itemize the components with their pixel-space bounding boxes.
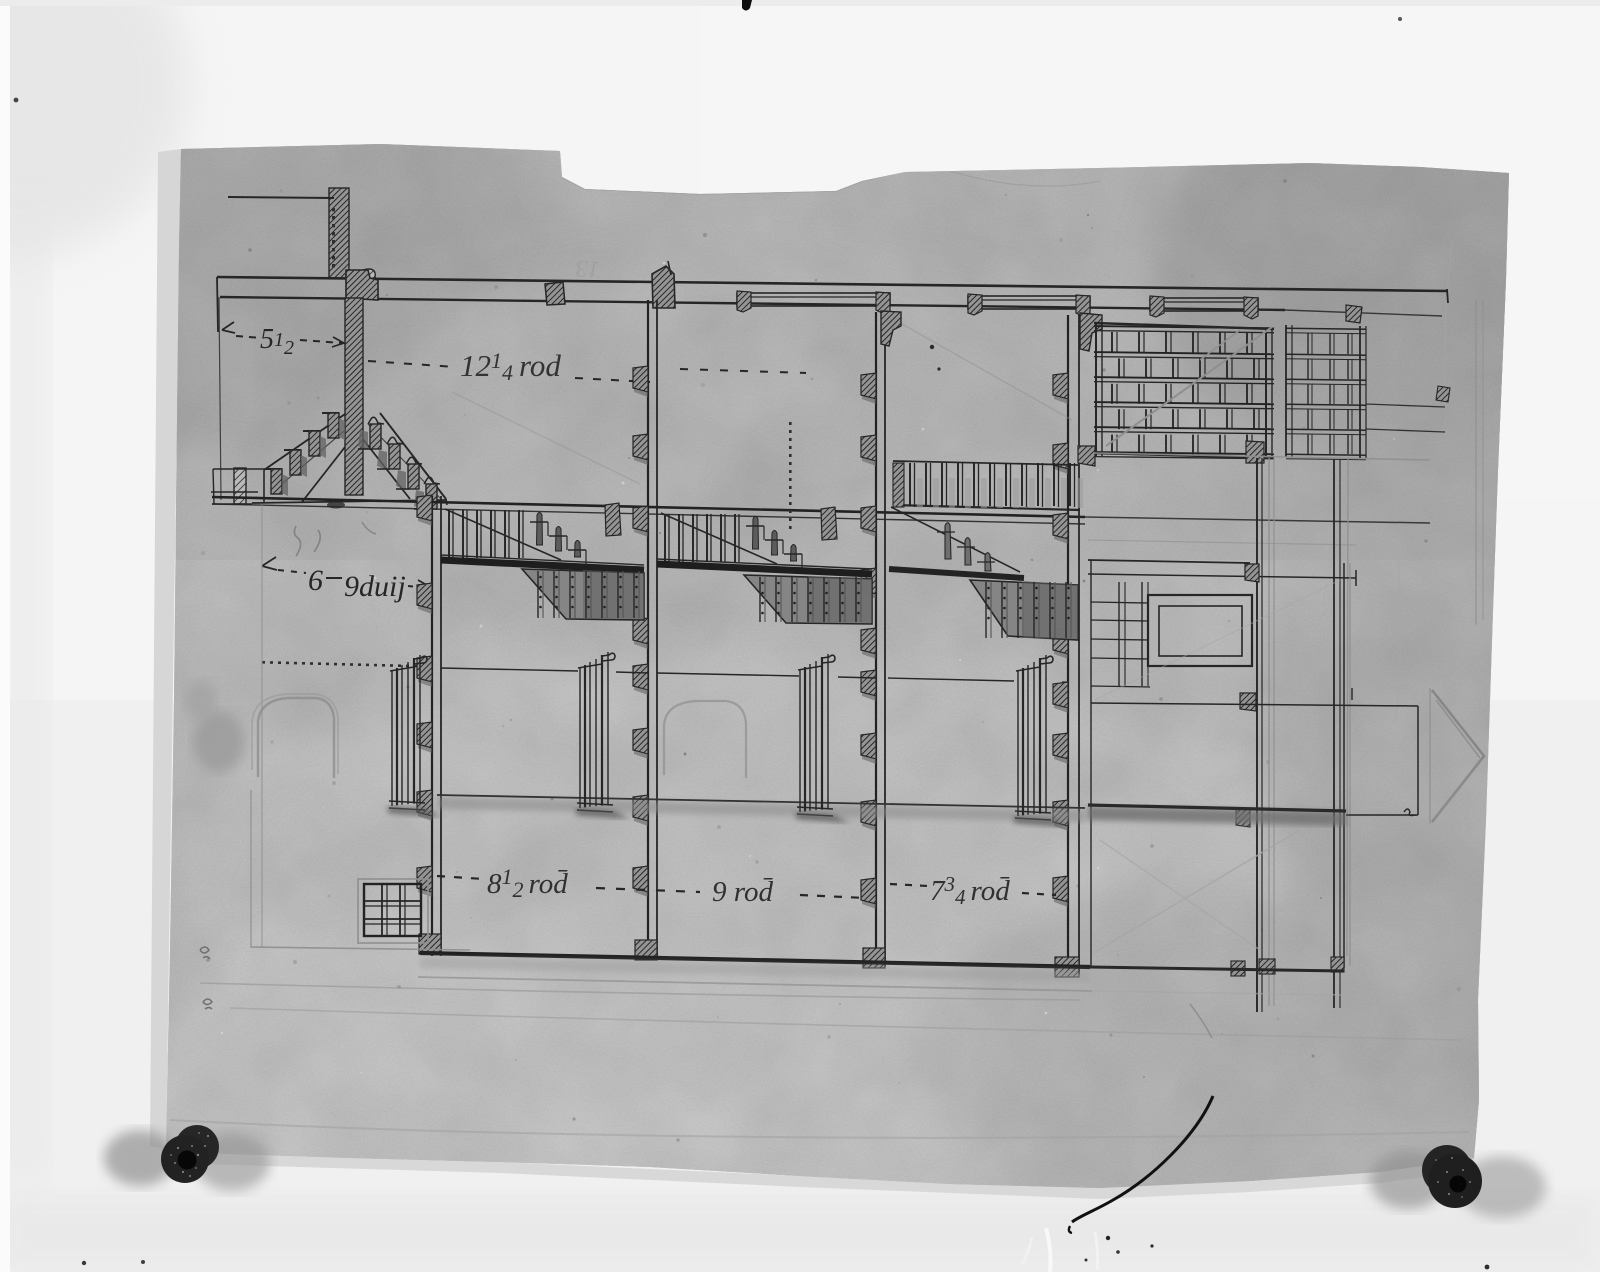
svg-text:6: 6: [308, 564, 323, 597]
svg-text:734rod̄: 734rod̄: [930, 872, 1010, 909]
svg-text:9duij: 9duij: [344, 570, 406, 603]
svg-text:812rod̄: 812rod̄: [487, 864, 568, 902]
svg-text:9 rod̄: 9 rod̄: [712, 876, 774, 908]
svg-text:13: 13: [575, 255, 600, 282]
